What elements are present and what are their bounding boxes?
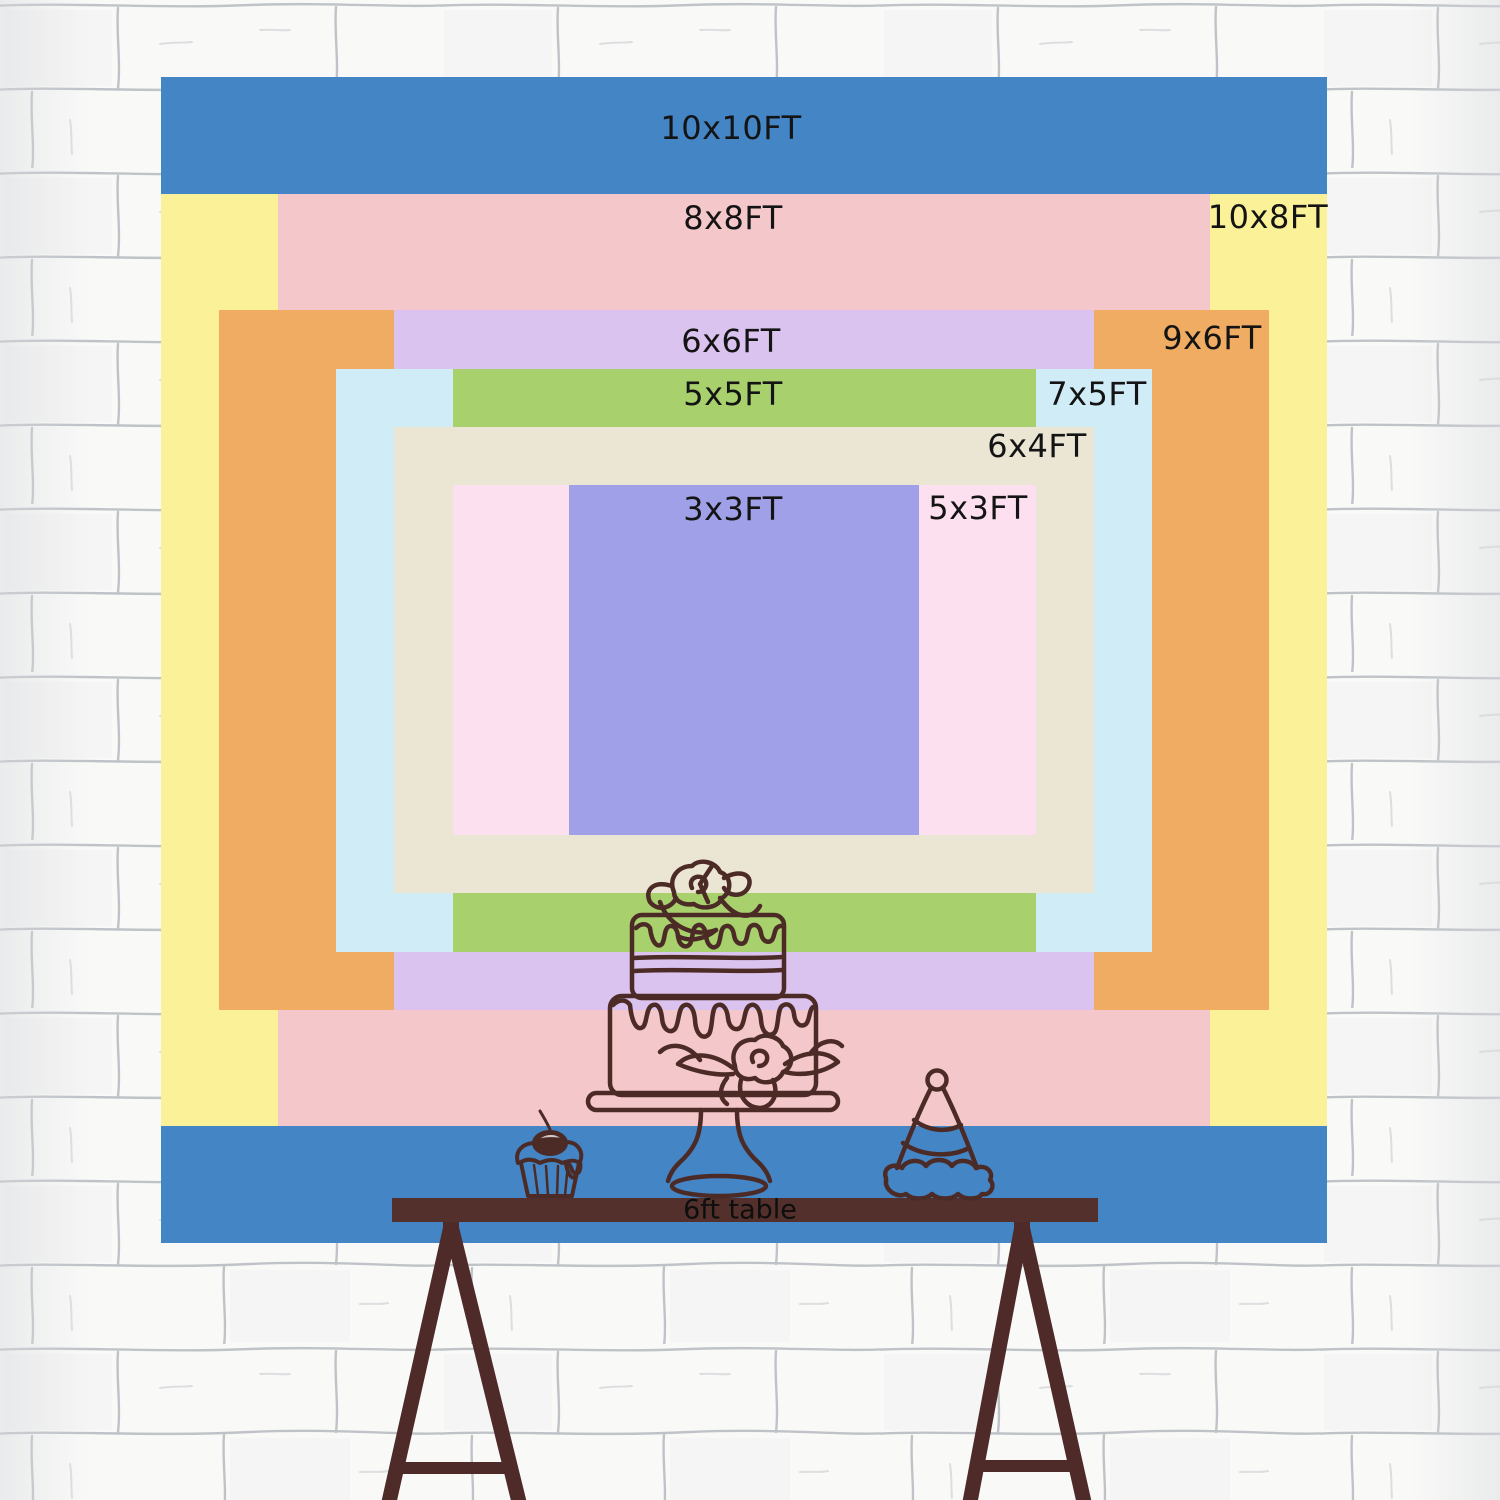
backdrop-size-chart: 10x10FT10x8FT8x8FT9x6FT6x6FT7x5FT5x5FT6x…: [0, 0, 1500, 1500]
size-rect-3x3ft: [569, 485, 919, 835]
size-rectangles: [0, 0, 1500, 1500]
